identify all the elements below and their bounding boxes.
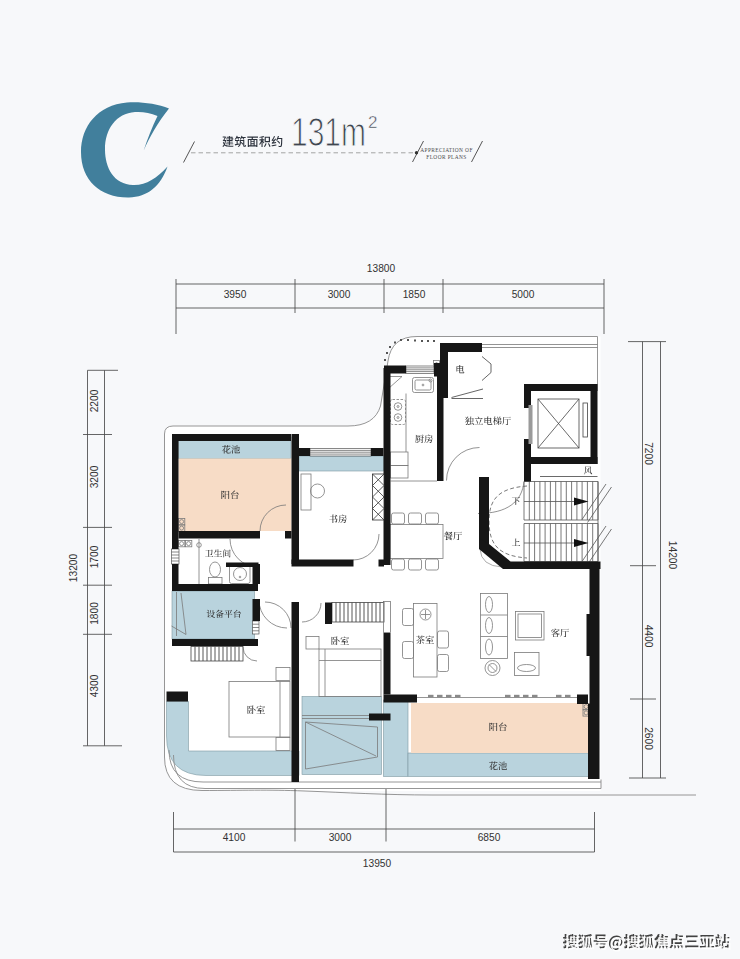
svg-text:4300: 4300 bbox=[89, 674, 100, 697]
svg-text:7200: 7200 bbox=[643, 442, 654, 465]
svg-text:13950: 13950 bbox=[363, 858, 392, 869]
svg-text:4100: 4100 bbox=[223, 832, 246, 843]
svg-text:14200: 14200 bbox=[667, 541, 678, 570]
svg-text:3000: 3000 bbox=[328, 289, 351, 300]
svg-text:2: 2 bbox=[368, 113, 377, 132]
svg-text:3200: 3200 bbox=[89, 465, 100, 488]
svg-text:1850: 1850 bbox=[403, 289, 426, 300]
svg-text:131m: 131m bbox=[291, 110, 366, 154]
svg-text:1800: 1800 bbox=[89, 602, 100, 625]
svg-text:5000: 5000 bbox=[512, 289, 535, 300]
svg-text:13200: 13200 bbox=[68, 554, 79, 583]
svg-text:APPRECIATION OF: APPRECIATION OF bbox=[420, 147, 473, 153]
svg-text:1700: 1700 bbox=[89, 545, 100, 568]
svg-text:3950: 3950 bbox=[224, 289, 247, 300]
svg-text:FLOOR PLANS: FLOOR PLANS bbox=[426, 154, 467, 160]
svg-text:2200: 2200 bbox=[89, 389, 100, 412]
svg-text:4400: 4400 bbox=[643, 625, 654, 648]
svg-text:2600: 2600 bbox=[643, 727, 654, 750]
svg-text:3000: 3000 bbox=[329, 832, 352, 843]
svg-text:6850: 6850 bbox=[478, 832, 501, 843]
svg-text:13800: 13800 bbox=[367, 263, 396, 274]
